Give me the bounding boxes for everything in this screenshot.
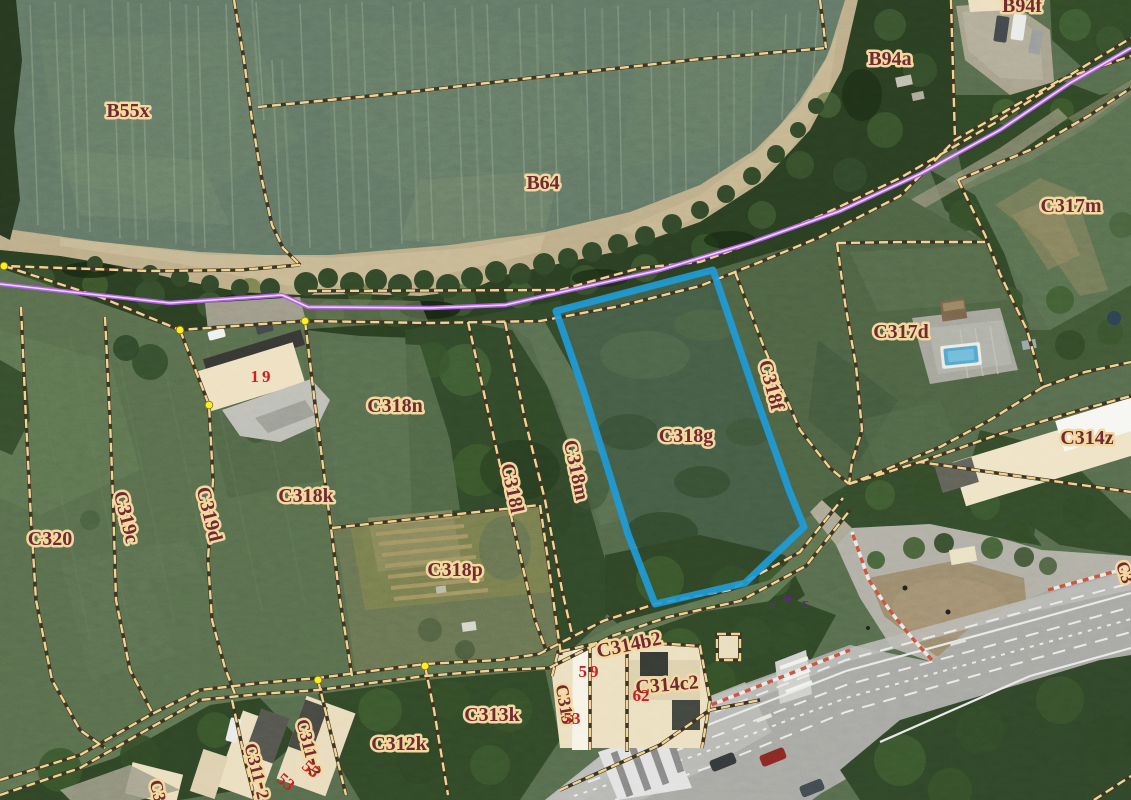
svg-text:C312k: C312k — [371, 733, 427, 755]
svg-text:B94f: B94f — [1002, 0, 1042, 17]
svg-text:C320: C320 — [28, 528, 72, 550]
svg-text:62: 62 — [633, 686, 650, 705]
svg-text:59: 59 — [579, 662, 602, 681]
svg-text:53: 53 — [564, 709, 581, 728]
svg-text:C318g: C318g — [659, 425, 713, 447]
svg-text:B94a: B94a — [868, 48, 911, 70]
svg-text:x: x — [770, 599, 776, 611]
svg-text:Σ: Σ — [802, 599, 809, 611]
svg-text:C318k: C318k — [278, 485, 334, 507]
svg-text:C313k: C313k — [464, 704, 520, 726]
svg-text:C317m: C317m — [1040, 195, 1101, 217]
svg-text:C318n: C318n — [367, 395, 423, 417]
svg-text:B64: B64 — [526, 172, 559, 194]
svg-text:98: 98 — [783, 594, 793, 604]
svg-text:C314z: C314z — [1060, 427, 1113, 449]
svg-text:C318p: C318p — [427, 559, 483, 581]
svg-text:c: c — [742, 634, 746, 644]
svg-text:19: 19 — [251, 367, 274, 386]
svg-text:C317d: C317d — [873, 321, 929, 343]
svg-text:B55x: B55x — [106, 100, 149, 122]
